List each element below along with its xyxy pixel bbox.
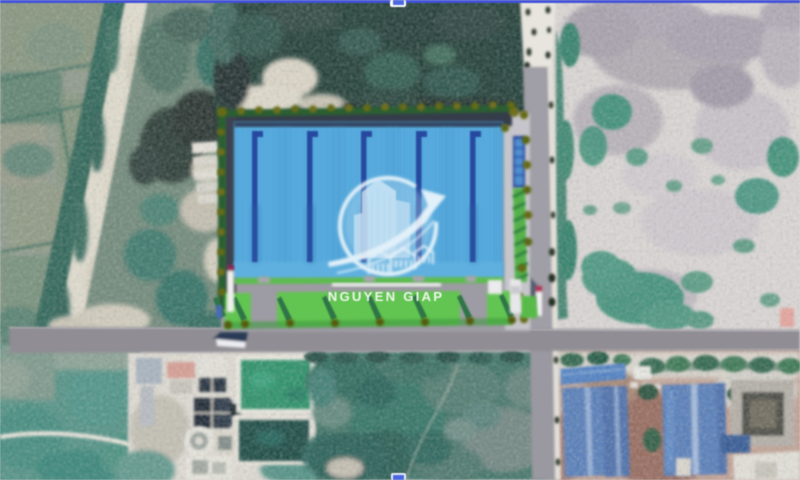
svg-text:NGUYEN GIAP: NGUYEN GIAP [328, 289, 445, 304]
